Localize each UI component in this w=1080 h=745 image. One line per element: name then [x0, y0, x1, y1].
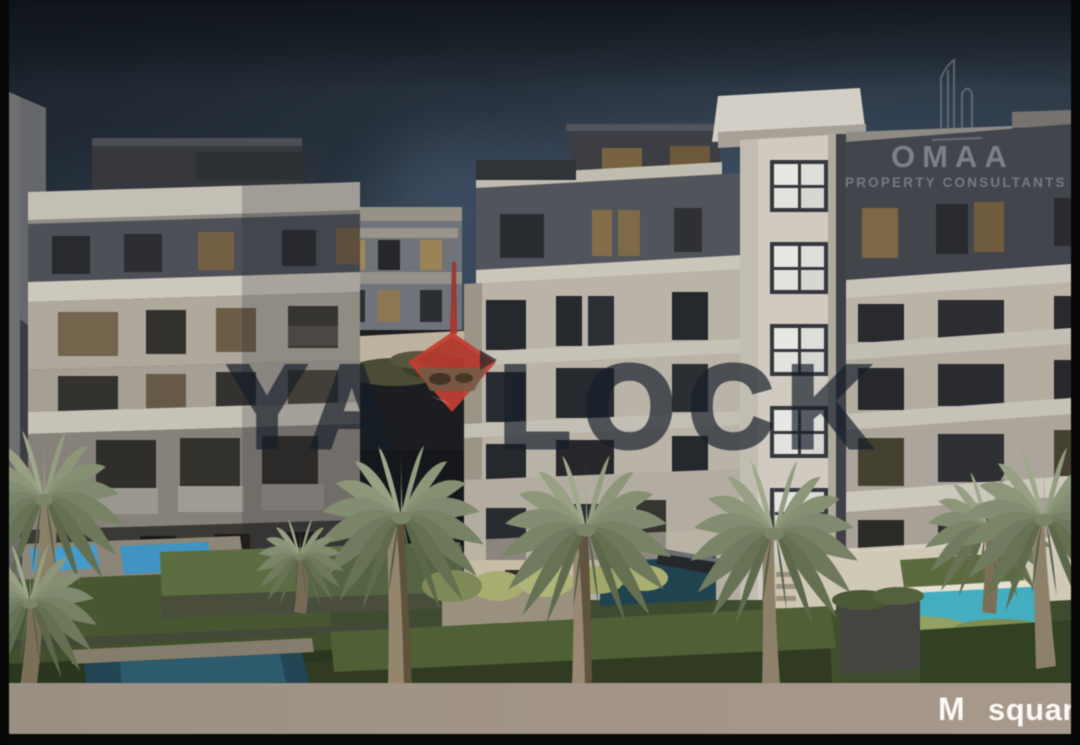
svg-text:OMAA: OMAA [891, 139, 1014, 174]
svg-text:PROPERTY CONSULTANTS: PROPERTY CONSULTANTS [845, 175, 1067, 190]
svg-text:square: square [988, 692, 1080, 727]
svg-text:YA: YA [228, 341, 394, 472]
svg-text:M: M [938, 691, 965, 727]
